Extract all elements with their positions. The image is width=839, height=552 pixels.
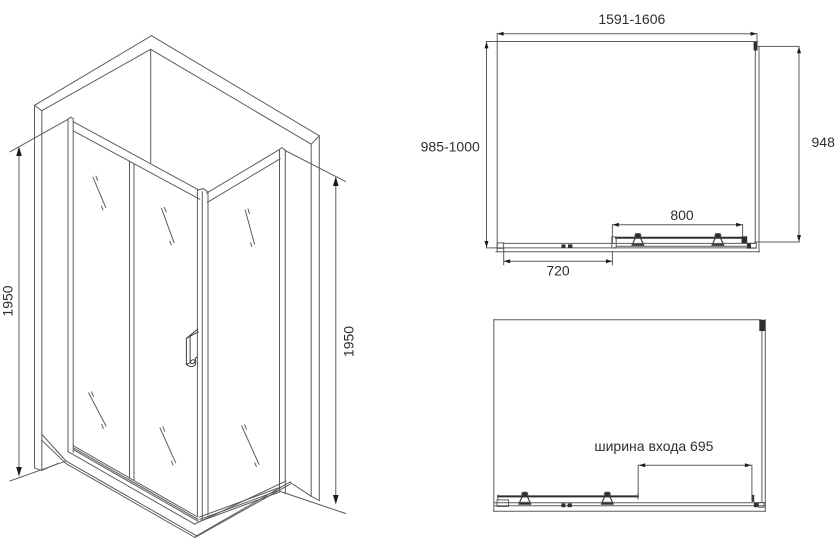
svg-text:1950: 1950 xyxy=(341,326,357,357)
svg-text:985-1000: 985-1000 xyxy=(421,139,480,155)
svg-text:720: 720 xyxy=(546,263,570,279)
svg-text:1591-1606: 1591-1606 xyxy=(598,11,665,27)
svg-text:800: 800 xyxy=(670,207,694,223)
svg-text:1950: 1950 xyxy=(0,285,16,316)
svg-text:948: 948 xyxy=(812,134,836,150)
svg-text:ширина входа 695: ширина входа 695 xyxy=(594,438,713,454)
